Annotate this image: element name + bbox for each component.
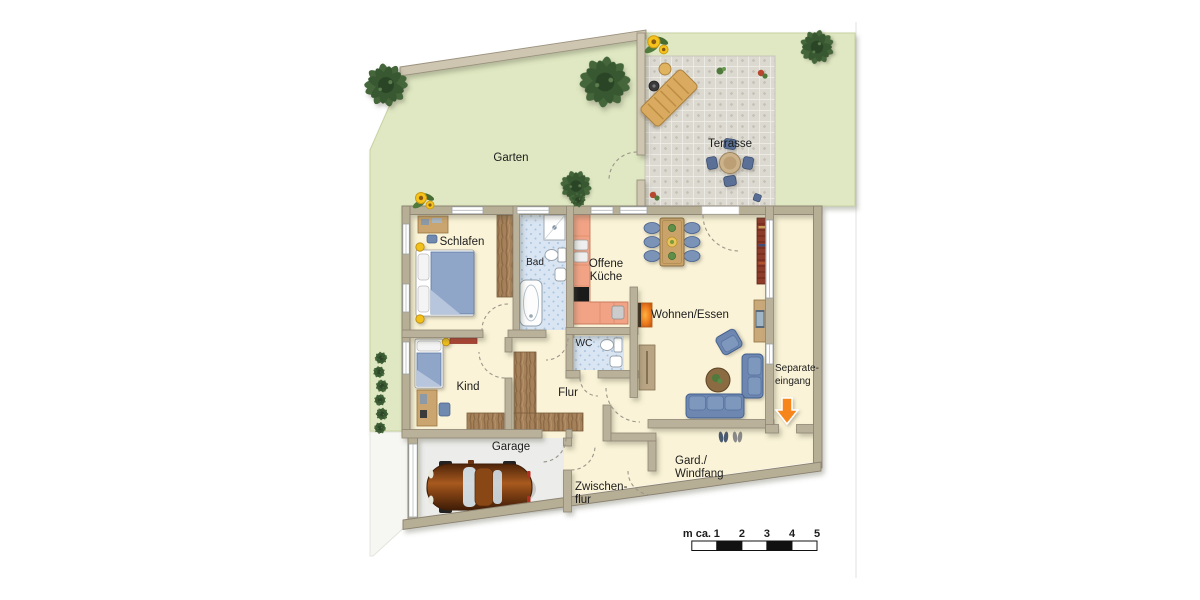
label-kind: Kind [456, 381, 479, 393]
dining-chair [684, 237, 700, 248]
wall-entry-stub [797, 425, 814, 434]
wall-windfang-left [648, 441, 656, 471]
desk-chair [439, 403, 450, 416]
label-gard-windfang-2: Windfang [675, 468, 724, 480]
loveseat-sofa [742, 354, 763, 398]
floor-plan-svg: Garten Terrasse Schlafen Bad Offene Küch… [0, 0, 1200, 600]
driveway-area [370, 432, 408, 556]
label-gard-windfang-1: Gard./ [675, 455, 708, 467]
dining-set [644, 218, 700, 266]
scale-tick: 4 [789, 528, 796, 540]
scale-tick: 2 [739, 528, 745, 540]
scale-unit-label: m ca. [683, 528, 711, 540]
wall-bedroom-bottom [402, 330, 483, 338]
coffee-table [706, 368, 730, 392]
label-separate-eingang-1: Separate- [775, 363, 819, 374]
wall-garage-right [564, 470, 572, 512]
wall-bath-kitchen [567, 206, 574, 330]
three-seat-sofa [686, 394, 744, 418]
kitchen-sink [574, 252, 588, 262]
side-table [659, 63, 671, 75]
shower [544, 215, 565, 240]
label-schlafen: Schlafen [440, 236, 485, 248]
wall-vestibule-stub [611, 433, 656, 441]
floor-plan-page: Garten Terrasse Schlafen Bad Offene Küch… [0, 0, 1200, 600]
wall-wc-top [566, 328, 638, 335]
wall-right [814, 206, 823, 468]
dining-chair [644, 223, 660, 234]
double-bed [416, 243, 474, 323]
label-terrasse: Terrasse [708, 138, 752, 150]
label-bad: Bad [526, 257, 544, 268]
label-wc: WC [576, 338, 593, 349]
wall-living-bottom [648, 420, 774, 429]
kitchen-appliance [612, 306, 624, 319]
tv-sideboard [754, 300, 766, 342]
terrace-door-opening [702, 207, 739, 215]
wall-garage-top [402, 430, 542, 439]
wall-wc-bottom [566, 371, 580, 379]
label-separate-eingang-2: eingang [775, 376, 811, 387]
wall-vestibule-stub [603, 405, 611, 441]
wall-kitchen-living [630, 287, 638, 398]
scale-tick: 5 [814, 528, 820, 540]
wall-bedroom-bottom [508, 330, 546, 338]
label-offene-kueche-2: Küche [590, 271, 623, 283]
scale-tick: 3 [764, 528, 770, 540]
lamp-icon [442, 338, 450, 346]
label-garten: Garten [493, 152, 528, 164]
wc-sink [610, 356, 622, 367]
fireplace-oven [638, 303, 652, 327]
radiator-icon [450, 338, 477, 344]
label-zwischenflur-2: flur [575, 494, 591, 506]
scale-tick: 1 [714, 528, 720, 540]
scale-bar: m ca. 1 2 3 4 5 [683, 528, 820, 551]
label-garage: Garage [492, 441, 530, 453]
label-zwischenflur-1: Zwischen- [575, 481, 628, 493]
bathtub [520, 280, 542, 326]
dining-chair [644, 237, 660, 248]
kitchen-sink [574, 240, 588, 250]
wall-kid-hall [505, 378, 512, 431]
terrace-area [645, 56, 775, 206]
nightstand-lamp-icon [416, 315, 424, 323]
stove-icon [574, 287, 590, 302]
wall-entry-stub [766, 425, 779, 434]
nightstand-lamp-icon [416, 243, 424, 251]
wall-garage-top [566, 430, 572, 439]
dining-chair [684, 223, 700, 234]
dining-chair [684, 251, 700, 262]
wall-bedroom-bath [513, 206, 520, 330]
dining-chair [644, 251, 660, 262]
bathroom-sink [555, 268, 566, 281]
hall-cabinet [639, 345, 655, 390]
label-offene-kueche-1: Offene [589, 258, 623, 270]
wall-kid-hall [505, 338, 512, 353]
label-wohnen-essen: Wohnen/Essen [651, 309, 729, 321]
label-flur: Flur [558, 387, 578, 399]
bedroom-wardrobe [497, 215, 513, 297]
